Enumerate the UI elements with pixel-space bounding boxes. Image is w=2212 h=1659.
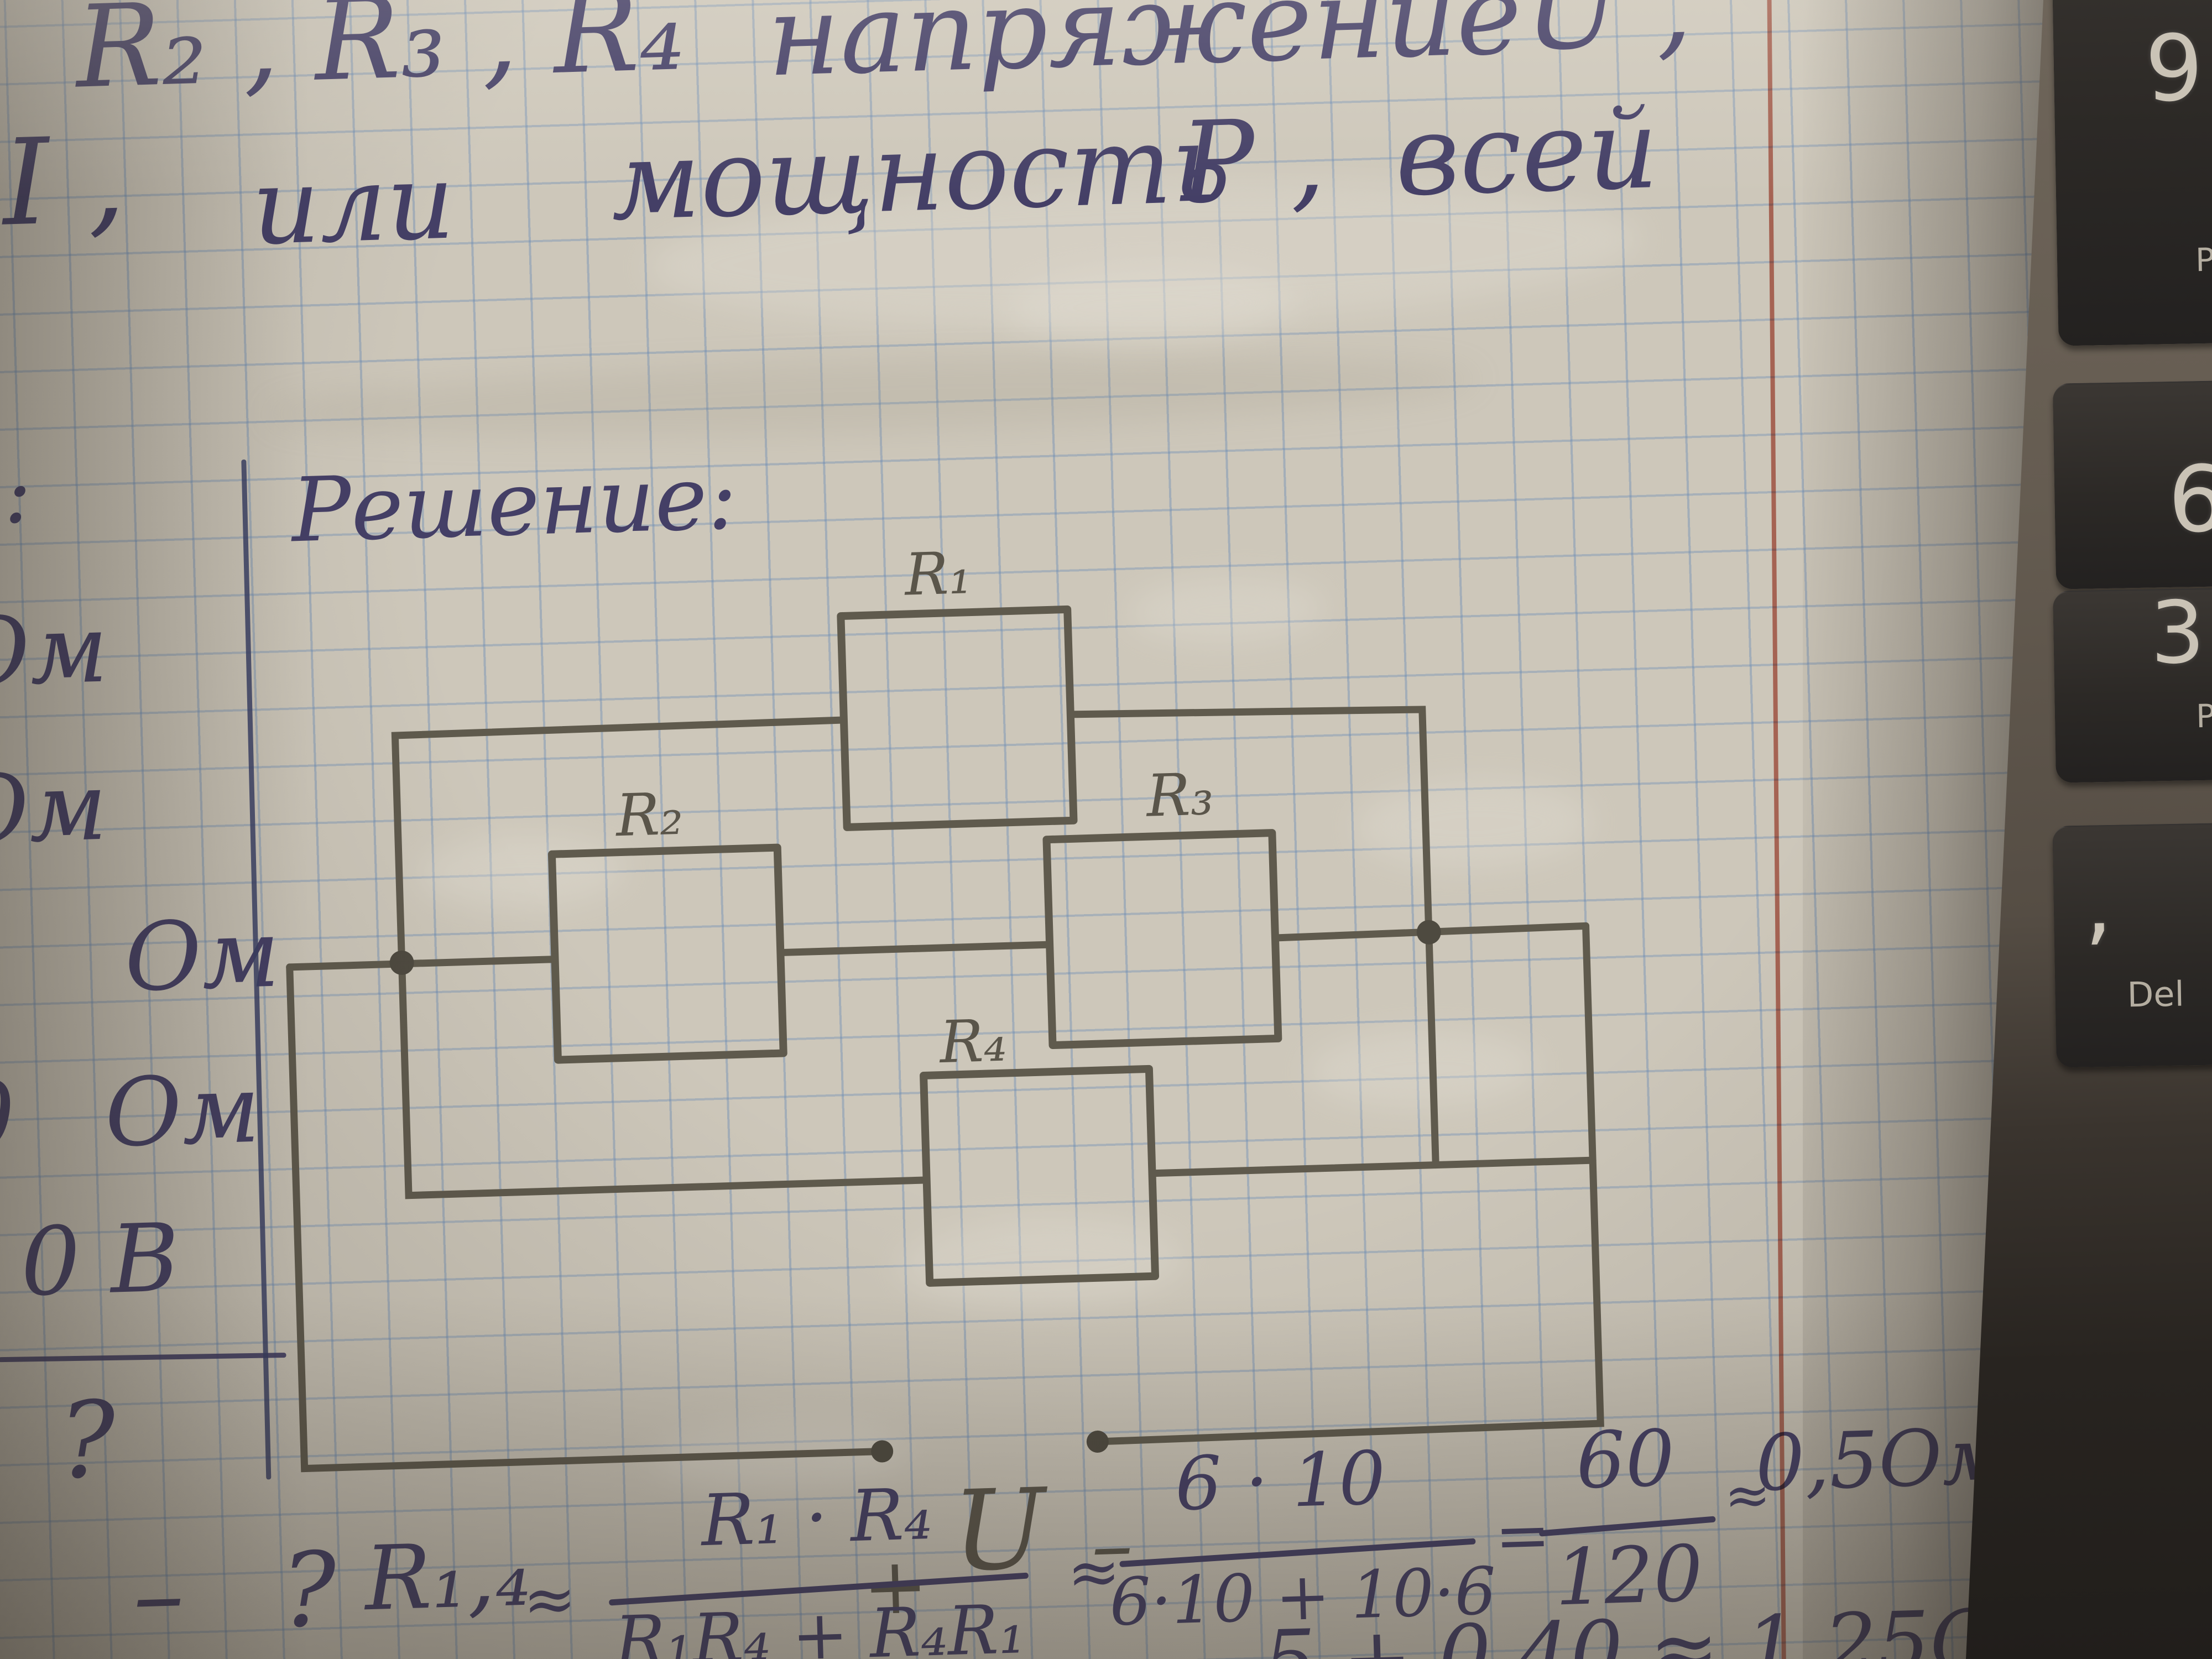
wire-outer-left-bottom: [290, 950, 882, 1469]
node-b-dot: [1416, 920, 1441, 945]
wire-mid-left: [290, 959, 555, 967]
key-pgdn-sublabel: PgDn: [2195, 699, 2212, 733]
resistor-r4-box: [924, 1069, 1155, 1283]
resistor-r1-label: R₁: [902, 539, 973, 609]
notebook-photo: R₂ , R₃ , R₄ напряжение U , I , или мощн…: [0, 0, 2212, 1659]
red-margin-line: [1766, 0, 1787, 1659]
wire-r4-left: [402, 947, 927, 1196]
key-del-sublabel: Del: [2127, 977, 2184, 1013]
formula-frac2-numerator: 6 · 10: [1124, 1441, 1436, 1524]
problem-text-power-word: мощность: [609, 109, 1232, 236]
key-pgup-sublabel: PgUp: [2195, 243, 2212, 276]
node-a-dot: [389, 950, 414, 975]
wire-mid-center: [780, 945, 1050, 952]
problem-text-resistors: R₂ , R₃ , R₄: [74, 0, 686, 105]
wire-r4-right: [1152, 1160, 1593, 1173]
key-comma-label: ,: [2083, 859, 2113, 948]
wire-top-right: [1071, 704, 1429, 942]
resistor-r2-box: [552, 848, 784, 1060]
key-3-label: 3: [2150, 589, 2205, 676]
wire-outer-right-bottom: [1083, 926, 1600, 1442]
numpad-key-6: 6: [2053, 379, 2212, 589]
resistor-r4-label: R₄: [937, 1007, 1008, 1077]
numpad-key-3-pgdn: 3 PgDn: [2053, 587, 2212, 782]
wire-node-b-down: [1429, 932, 1436, 1165]
given-row-ohm-2: Ом: [0, 760, 108, 858]
key-6-label: 6: [2167, 453, 2212, 546]
key-9-label: 9: [2145, 23, 2204, 115]
problem-text-voltage-word: напряжение: [765, 0, 1523, 93]
numpad-key-comma-del: , Del: [2052, 822, 2212, 1067]
problem-text-p-symbol: P , всей: [1178, 94, 1660, 219]
formula-frac1-denominator: R₁R₄ + R₄R₁: [598, 1595, 1042, 1659]
formula-lhs: R₁,₄: [363, 1530, 531, 1624]
resistor-r2-label: R₂: [614, 780, 684, 850]
ink-bleed-smudge: [263, 343, 1481, 451]
given-row-volts: 0 В: [19, 1211, 181, 1310]
find-question-1: ?: [58, 1387, 117, 1494]
given-row-ohm-1: Ом: [0, 602, 109, 700]
source-minus-terminal-dot: [1086, 1430, 1109, 1453]
formula-frac3-numerator: 60: [1544, 1419, 1707, 1501]
resistor-r3-box: [1046, 833, 1278, 1045]
resistor-r3-label: R₃: [1144, 760, 1214, 830]
numpad-key-9-pgup: 9 PgUp: [2050, 0, 2212, 346]
source-plus-terminal-dot: [871, 1440, 894, 1463]
formula-frac1-numerator: R₁ · R₄: [606, 1477, 1027, 1559]
formula-eq1: ≈: [522, 1567, 577, 1632]
problem-text-current: I ,: [1, 120, 127, 242]
resistor-r1-box: [841, 609, 1073, 827]
given-colon: :: [2, 452, 33, 535]
formula-eq3: =: [1494, 1503, 1551, 1571]
problem-text-u-symbol: U ,: [1522, 0, 1693, 67]
problem-text-or-word: или: [251, 149, 456, 260]
